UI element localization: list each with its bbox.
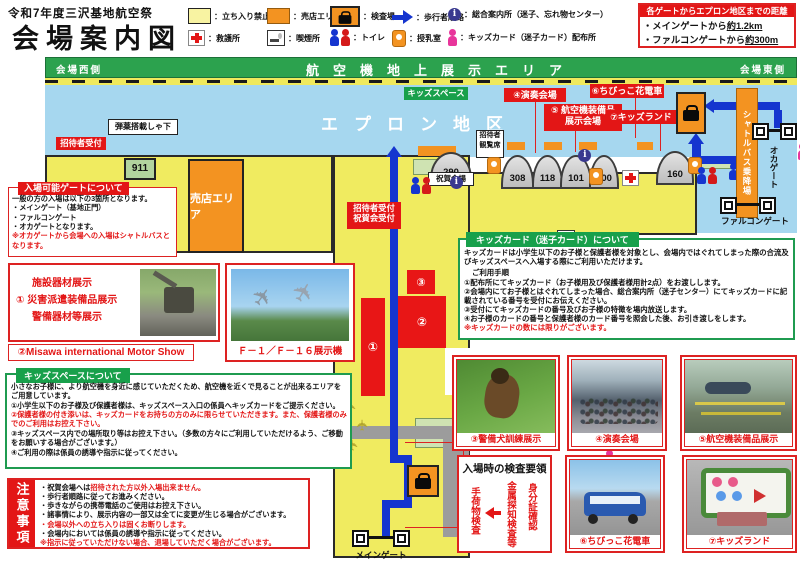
photo-kidsland-sign <box>687 460 792 535</box>
equipment-caption: ⑤航空機装備品展示 <box>685 433 792 446</box>
facility-line2: ① 災害派遣装備品展示 <box>16 292 138 309</box>
legend-label: ：授乳室 <box>409 33 441 44</box>
info-center-icon <box>448 8 461 21</box>
kids-card-icon <box>448 29 457 46</box>
legend-item: ：救護所 <box>188 30 240 46</box>
facility-exhibit-box: 施設器材展示 ① 災害派遣装備品展示 警備器材等展示 <box>8 263 220 342</box>
notes-line: ・諸事情により、展示内容の一部又は全てに変更が生じる場合がございます。 <box>40 510 303 519</box>
dog-caption: ③警備犬訓練展示 <box>457 433 555 446</box>
display-zone-1: ① <box>361 298 385 396</box>
legend-label: ：キッズカード（迷子カード）配布所 <box>460 32 596 43</box>
main-gate-label: メインゲート <box>348 549 414 561</box>
inspection-step-bag: 手荷物検査 <box>467 487 481 547</box>
crowd-texture <box>580 398 658 424</box>
kids-space-line: ③キッズスペース内での場所取り等はお控え下さい。（多数の方々にご利用していただけ… <box>11 429 347 448</box>
leader-line <box>575 130 576 152</box>
photo-guard-dog <box>457 360 555 433</box>
facility-line3: 警備器材等展示 <box>16 309 138 326</box>
kids-card-intro: キッズカードは小学生以下のお子様と保護者様を対象とし、会場内ではぐれてしまった際… <box>464 248 790 266</box>
motor-show-label: ②Misawa international Motor Show <box>18 347 185 358</box>
f16-photo-box: ✈ ✈ Ｆ－１／Ｆ－１６展示機 <box>225 263 355 362</box>
boundary-strip <box>45 78 797 85</box>
falcon-gate-label: ファルコンゲート <box>710 215 800 227</box>
jet-statue: ✈ <box>245 281 280 314</box>
notes-text: ・祝賀会場へは <box>40 483 90 492</box>
facility-line1: 施設器材展示 <box>16 275 138 292</box>
legend-label: ：立ち入り禁止 <box>214 11 270 22</box>
hangar-118: 118 <box>532 155 563 189</box>
kids-space-line: ④ご利用の際は係員の誘導や指示に従ってください。 <box>11 448 347 457</box>
railing <box>695 402 785 405</box>
legend-item: ：総合案内所（迷子、忘れ物センター） <box>448 8 608 21</box>
toilet-icon <box>411 177 431 194</box>
distance-text: ・メインゲートから <box>643 21 727 31</box>
reception-line2: 祝賀会受付 <box>347 213 401 223</box>
inspection-step-metal: 金属探知検査等 <box>503 481 517 549</box>
info-center-icon <box>450 176 463 189</box>
no-entry-icon <box>188 8 211 24</box>
display-zone-2: ② <box>398 296 446 348</box>
notes-line: ※指示に従っていただけない場合、退場していただく場合がございます。 <box>40 538 303 547</box>
train-label: ⑥ちびっこ花電車 <box>590 84 664 98</box>
train-stripe <box>590 496 640 504</box>
concert-photo-box: ④演奏会場 <box>567 355 667 451</box>
concert-caption: ④演奏会場 <box>572 433 662 446</box>
legend-item: ：立ち入り禁止 <box>188 8 270 24</box>
sign-arrow <box>754 489 766 503</box>
kidsland-sign <box>701 468 791 518</box>
kids-card-step: ④お子様のカードの番号と保護者様のカード番号を照会した後、お引き渡しをします。 <box>464 314 790 323</box>
info-center-icon <box>578 149 591 162</box>
gate-info-body: 一般の方の入場は以下の3箇所となります。 ・メインゲート（基地正門） ・ファルコ… <box>12 194 172 250</box>
kids-card-body: キッズカードは小学生以下のお子様と保護者様を対象とし、会場内ではぐれてしまった際… <box>464 248 790 333</box>
toilet-icon <box>330 29 350 46</box>
leader-line <box>535 102 536 153</box>
photo-concert <box>572 360 662 433</box>
distance-line-main: ・メインゲートから約1.2km <box>640 17 794 32</box>
kids-space-line: ①小学生以下のお子様及び保護者様は、キッズスペース入口の係員へキッズカードをご提… <box>11 401 347 410</box>
distance-info-box: 各ゲートからエプロン地区までの距離 ・メインゲートから約1.2km ・ファルコン… <box>638 3 796 48</box>
equipment-photo-box: ⑤航空機装備品展示 <box>680 355 797 451</box>
notes-text-red: 招待された方以外入場出来ません。 <box>90 483 205 492</box>
inspection-station <box>407 465 439 497</box>
excavator-shape <box>164 287 194 313</box>
train-wheel <box>628 514 638 524</box>
shop-area-zone: 売店エリア <box>188 159 244 253</box>
kids-card-step: ②会場内にてお子様とはぐれてしまった場合、総合案内所（迷子センター）にてキッズカ… <box>464 287 790 305</box>
smoking-icon <box>267 30 285 46</box>
photo-equipment <box>685 360 792 433</box>
motor-show-box: ②Misawa international Motor Show <box>8 344 194 361</box>
legend-item: ：検査場 <box>330 6 395 27</box>
aircraft-display-area-label: 航空機地上展示エリア <box>196 60 686 79</box>
kids-card-step: ①配布所にてキッズカード（お子様用及び保護者様用計2点）をお渡しします。 <box>464 278 790 287</box>
walk-route-icon <box>392 10 413 24</box>
invited-seats-line2: 観覧席 <box>477 141 503 151</box>
kids-space-box-title: キッズスペースについて <box>16 368 130 383</box>
notes-body: ・祝賀会場へは招待された方以外入場出来ません。 ・歩行者順路に従ってお進みくださ… <box>35 480 308 547</box>
gate-info-line: ・オカゲートとなります。 <box>12 222 172 231</box>
train-wheel <box>588 514 598 524</box>
route-arrowhead <box>688 133 704 144</box>
notes-line: ・歩行者順路に従ってお進みください。 <box>40 492 303 501</box>
nursing-room-icon <box>589 168 603 185</box>
distance-value: 約1.2km <box>727 21 763 31</box>
gate-info-line: ・メインゲート（基地正門） <box>12 203 172 212</box>
display-area-banner: 会場西側 航空機地上展示エリア 会場東側 <box>45 57 797 78</box>
concert-venue-label: ④演奏会場 <box>504 88 566 102</box>
notes-box: 注意事項 ・祝賀会場へは招待された方以外入場出来ません。 ・歩行者順路に従ってお… <box>7 478 310 549</box>
sign-dot <box>712 477 722 487</box>
reception-label: 招待者受付 祝賀会受付 <box>347 202 401 229</box>
legend-label: ：総合案内所（迷子、忘れ物センター） <box>464 9 608 20</box>
kids-space-line: 小さなお子様に、より航空機を身近に感じていただくため、航空機を近くで見ることが出… <box>11 382 347 401</box>
leader-line <box>660 124 661 151</box>
orange-pad <box>637 142 653 150</box>
jet-statue: ✈ <box>285 275 323 309</box>
inspection-arrow-bar <box>494 511 501 515</box>
invited-seats-label: 招待者 観覧席 <box>476 130 504 158</box>
gate-info-line: ・ファルコンゲート <box>12 213 172 222</box>
kids-card-title: キッズカード（迷子カード）について <box>466 232 639 247</box>
f16-caption: Ｆ－１／Ｆ－１６展示機 <box>227 343 353 357</box>
legend-label: ：検査場 <box>363 11 395 22</box>
distance-title: 各ゲートからエプロン地区までの距離 <box>640 5 794 17</box>
sign-dot <box>728 477 738 487</box>
toilet-icon <box>697 167 717 184</box>
nursing-room-icon <box>392 30 406 47</box>
dog-photo-box: ③警備犬訓練展示 <box>452 355 560 451</box>
display-zone-3: ③ <box>407 270 435 294</box>
hangar-308: 308 <box>501 155 534 189</box>
sign-dot <box>732 491 742 501</box>
dog-head <box>491 368 509 384</box>
legend-label: ：喫煙所 <box>288 33 320 44</box>
facility-exhibit-text: 施設器材展示 ① 災害派遣装備品展示 警備器材等展示 <box>16 275 138 326</box>
photo-kids-train <box>570 460 660 535</box>
page-title: 会場案内図 <box>12 17 182 56</box>
first-aid-icon <box>188 30 205 46</box>
excavator-arm <box>153 270 178 288</box>
legend-item: ：授乳室 <box>392 30 441 47</box>
kids-card-subtitle: ご利用手順 <box>464 268 790 277</box>
orange-pad <box>544 142 562 150</box>
inspection-arrow <box>485 507 494 519</box>
shop-area-icon <box>267 8 290 24</box>
falcon-gate <box>720 197 776 213</box>
invited-reception-label: 招待者受付 <box>56 137 106 150</box>
walk-route <box>390 413 398 460</box>
sign-stand <box>717 512 767 526</box>
legend-item: ：喫煙所 <box>267 30 320 46</box>
sign-dot <box>716 491 726 501</box>
nursing-room-icon <box>487 157 501 174</box>
distance-line-falcon: ・ファルコンゲートから約300m <box>640 32 794 46</box>
dashed-line <box>45 80 797 83</box>
legend-label: ：救護所 <box>208 33 240 44</box>
notes-line: ・歩きながらの携帯電話のご使用はお控え下さい。 <box>40 501 303 510</box>
kidsland-caption: ⑦キッズランド <box>687 535 792 548</box>
reception-line1: 招待者受付 <box>347 203 401 213</box>
legend-item: ：キッズカード（迷子カード）配布所 <box>448 29 596 46</box>
train-caption: ⑥ちびっこ花電車 <box>570 535 660 548</box>
oka-gate <box>752 123 797 139</box>
orange-pad <box>507 142 525 150</box>
kids-space-box-body: 小さなお子様に、より航空機を身近に感じていただくため、航空機を近くで見ることが出… <box>11 382 347 457</box>
kidsland-photo-box: ⑦キッズランド <box>682 455 797 553</box>
aircraft-part <box>705 382 751 394</box>
photo-f1-f16: ✈ ✈ <box>231 269 349 341</box>
notes-title: 注意事項 <box>13 482 32 546</box>
gate-info-line: 一般の方の入場は以下の3箇所となります。 <box>12 194 172 203</box>
railing <box>701 412 781 415</box>
main-gate <box>352 530 410 546</box>
kidsland-label: ⑦キッズランド <box>606 110 676 124</box>
legend-label: ：トイレ <box>353 32 385 43</box>
inspection-title: 入場時の検査要領 <box>459 461 550 476</box>
walk-route <box>390 156 398 413</box>
kids-card-step: ③受付にてキッズカードの番号及びお子様の特徴を場内放送します。 <box>464 305 790 314</box>
legend-item: ：トイレ <box>330 29 385 46</box>
notes-line: ・会場以外への立ち入りは固くお断りします。 <box>40 520 303 529</box>
apron-district-label: エプロン地区 <box>280 110 560 135</box>
aircraft-silhouette: ✈ <box>353 419 371 432</box>
east-side-label: 会場東側 <box>740 62 786 76</box>
distance-value: 約300m <box>745 35 778 45</box>
legend: ：立ち入り禁止 ：売店エリア ：検査場 ：歩行者順路 ：総合案内所（迷子、忘れ物… <box>186 5 634 51</box>
invited-seats-line1: 招待者 <box>477 131 503 141</box>
gate-info-note: ※オカゲートから会場への入場はシャトルバスとなります。 <box>12 231 172 250</box>
inspection-procedure-box: 入場時の検査要領 身分証確認 金属探知検査等 手荷物検査 <box>457 455 552 553</box>
building-911: 911 <box>124 158 156 180</box>
kids-space-line: ②保護者様の付き添いは、キッズカードをお持ちの方のみに限らせていただきます。また… <box>11 410 347 429</box>
photo-facility-equipment <box>140 269 216 336</box>
inspection-station <box>676 92 706 134</box>
kids-card-note: ※キッズカードの数には限りがございます。 <box>464 323 790 332</box>
first-aid-icon <box>622 170 639 186</box>
inspection-icon <box>330 6 360 27</box>
notes-line: ・祝賀会場へは招待された方以外入場出来ません。 <box>40 483 303 492</box>
notes-title-bar: 注意事項 <box>9 480 35 547</box>
kids-space-label: キッズスペース <box>404 87 468 100</box>
train-photo-box: ⑥ちびっこ花電車 <box>565 455 665 553</box>
west-side-label: 会場西側 <box>56 62 102 76</box>
notes-line: ・会場内においては係員の誘導や指示に従ってください。 <box>40 529 303 538</box>
distance-text: ・ファルコンゲートから <box>643 35 745 45</box>
venue-guide-poster: 令和7年度三沢基地航空祭 会場案内図 ：立ち入り禁止 ：売店エリア ：検査場 ：… <box>0 0 800 565</box>
ammo-shed-label: 弾薬搭載しゃ下 <box>108 119 178 135</box>
shop-area-label: 売店エリア <box>190 190 242 222</box>
inspection-step-id: 身分証確認 <box>524 483 538 547</box>
